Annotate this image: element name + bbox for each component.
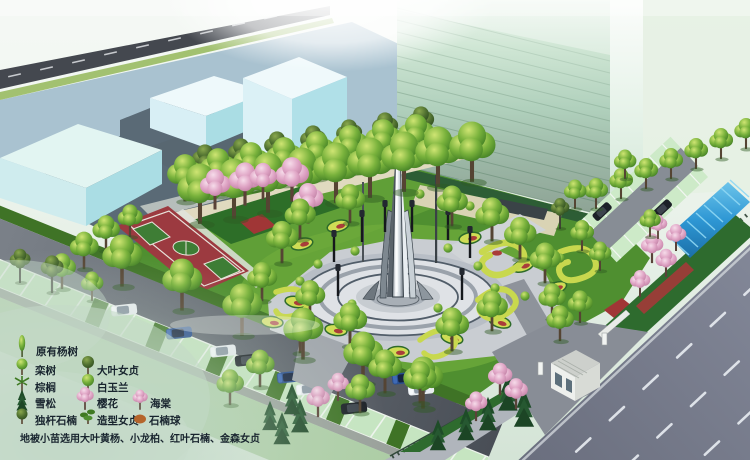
svg-text:大叶女贞: 大叶女贞 — [97, 364, 139, 377]
svg-text:造型女贞: 造型女贞 — [97, 414, 139, 427]
svg-text:原有杨树: 原有杨树 — [36, 345, 78, 358]
svg-text:白玉兰: 白玉兰 — [97, 381, 129, 394]
svg-text:樱花: 樱花 — [97, 397, 118, 410]
svg-text:地被小苗选用大叶黄杨、小龙柏、红叶石楠、金森女贞: 地被小苗选用大叶黄杨、小龙柏、红叶石楠、金森女贞 — [20, 432, 260, 445]
svg-text:独杆石楠: 独杆石楠 — [34, 414, 77, 427]
svg-text:海棠: 海棠 — [150, 397, 171, 410]
svg-text:栾树: 栾树 — [34, 364, 56, 377]
svg-text:雪松: 雪松 — [35, 397, 56, 410]
svg-text:棕榈: 棕榈 — [34, 381, 56, 394]
svg-text:石楠球: 石楠球 — [148, 414, 181, 427]
